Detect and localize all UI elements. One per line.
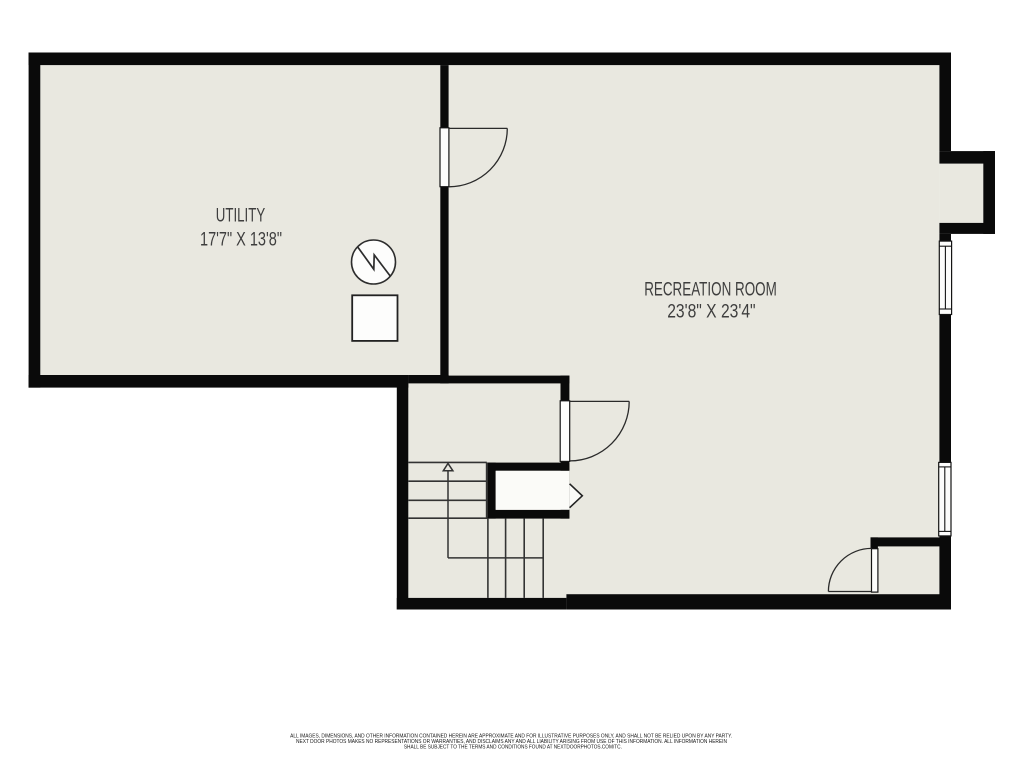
- svg-text:RECREATION ROOM: RECREATION ROOM: [644, 280, 777, 301]
- svg-text:17'7" X 13'8": 17'7" X 13'8": [200, 229, 282, 250]
- svg-text:SHALL BE SUBJECT TO THE TERMS: SHALL BE SUBJECT TO THE TERMS AND CONDIT…: [404, 744, 622, 750]
- svg-text:UTILITY: UTILITY: [216, 206, 266, 227]
- svg-text:23'8" X 23'4": 23'8" X 23'4": [667, 302, 755, 323]
